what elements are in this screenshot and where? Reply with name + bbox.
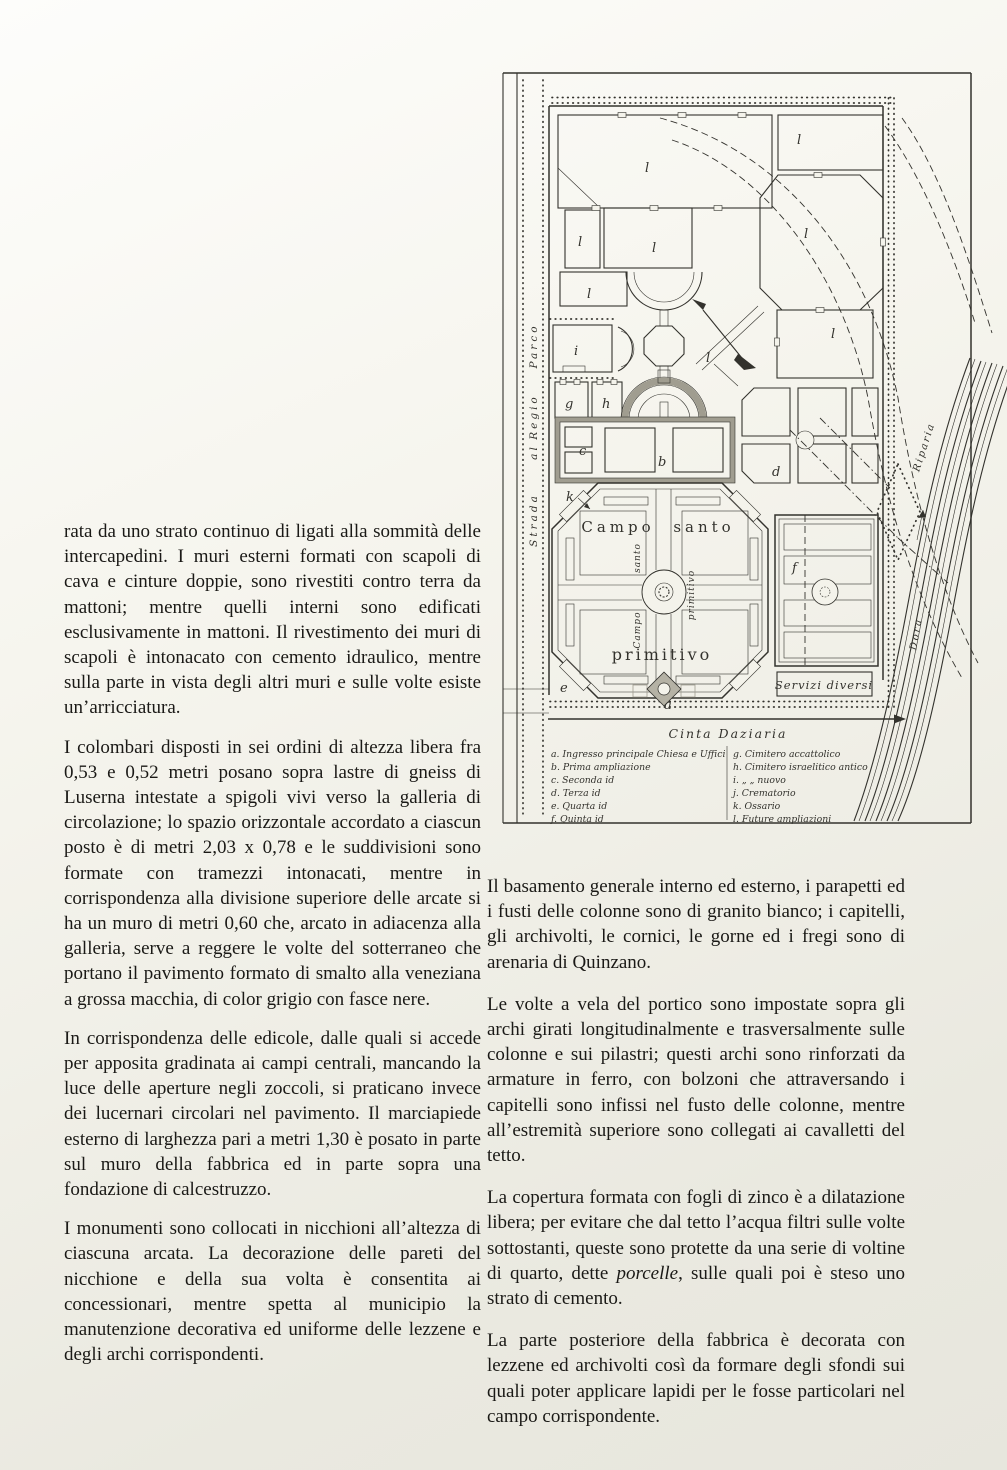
label-l: l [587, 287, 591, 302]
street-name-word: Strada [528, 493, 540, 547]
boundary-walls [549, 98, 894, 711]
label-k: k [566, 490, 574, 505]
street-name-word: al [528, 444, 540, 460]
street-name-word: Regio [528, 394, 540, 441]
label-b: b [658, 455, 666, 470]
north-arrow [692, 299, 756, 370]
paragraph: Le volte a vela del portico sono imposta… [487, 992, 905, 1168]
legend-item: e. Quarta id [551, 801, 607, 812]
label-l: l [797, 133, 801, 148]
label-l: l [652, 241, 656, 256]
figure-frame [503, 73, 971, 823]
street-name-word: Parco [528, 323, 540, 369]
legend-item: g. Cimitero accattolico [733, 749, 841, 760]
cinta-daziaria: Cinta Daziaria [548, 715, 906, 742]
primitivo-word-vertical: primitivo [687, 570, 697, 620]
legend-item: j. Crematorio [731, 788, 796, 799]
zone-f [775, 515, 878, 666]
legend-item: i. „ „ nuovo [733, 775, 786, 786]
label-i: i [574, 344, 578, 359]
paragraph: I monumenti sono collocati in nicchioni … [64, 1216, 481, 1367]
legend-item: h. Cimitero israelitico antico [733, 762, 868, 773]
cemetery-plan-figure: Strada al Regio Parco [500, 68, 1007, 828]
servizi-diversi-box: Servizi diversi [775, 672, 873, 696]
santo-word: santo [673, 518, 734, 536]
label-g: g [565, 397, 573, 412]
legend-item: l. Future ampliazioni [733, 814, 831, 825]
legend-item: d. Terza id [551, 788, 601, 799]
label-l: l [578, 235, 582, 250]
paragraph: Il basamento generale interno ed esterno… [487, 874, 905, 975]
figure-legend: a. Ingresso principale Chiesa e Uffici b… [550, 746, 868, 825]
label-l: l [706, 351, 710, 366]
campo-santo-enclosure [552, 483, 768, 706]
paragraph: In corrispondenza delle edicole, dalle q… [64, 1026, 481, 1202]
legend-item: b. Prima ampliazione [551, 762, 651, 773]
scanned-book-page: Strada al Regio Parco [0, 0, 1007, 1470]
servizi-diversi-label: Servizi diversi [775, 678, 873, 692]
santo-word-vertical: santo [633, 543, 643, 573]
legend-item: k. Ossario [733, 801, 781, 812]
church-arch [621, 370, 707, 420]
label-d: d [772, 465, 780, 480]
label-a: a [664, 698, 672, 713]
label-h: h [602, 397, 610, 412]
field-i [550, 319, 634, 378]
label-e: e [560, 681, 568, 696]
paragraph: I colombari disposti in sei ordini di al… [64, 735, 481, 1012]
road-strip: Strada al Regio Parco [503, 80, 549, 818]
paragraph: La copertura formata con fogli di zinco … [487, 1185, 905, 1311]
label-c: c [579, 444, 587, 459]
label-l: l [645, 161, 649, 176]
legend-item: a. Ingresso principale Chiesa e Uffici [551, 749, 725, 760]
campo-word: Campo [581, 518, 654, 536]
primitivo-word: primitivo [612, 645, 713, 664]
legend-item: f. Quinta id [550, 814, 604, 825]
legend-item: c. Seconda id [551, 775, 614, 786]
right-text-column: Il basamento generale interno ed esterno… [487, 874, 905, 1446]
river-dora-riparia: Riparia Dora [854, 358, 1007, 821]
label-l: l [831, 327, 835, 342]
label-f: f [791, 561, 799, 576]
river-name-riparia: Riparia [911, 421, 938, 474]
campo-word-vertical: Campo [633, 612, 643, 649]
paragraph: rata da uno strato continuo di ligati al… [64, 519, 481, 721]
zone-d [714, 364, 878, 483]
label-l: l [804, 227, 808, 242]
field-future-expansions [558, 113, 886, 379]
paragraph: La parte posteriore della fabbrica è dec… [487, 1328, 905, 1429]
left-text-column: rata da uno strato continuo di ligati al… [64, 519, 481, 1382]
cinta-daziaria-label: Cinta Daziaria [669, 726, 788, 741]
italic-term: porcelle [617, 1263, 679, 1284]
